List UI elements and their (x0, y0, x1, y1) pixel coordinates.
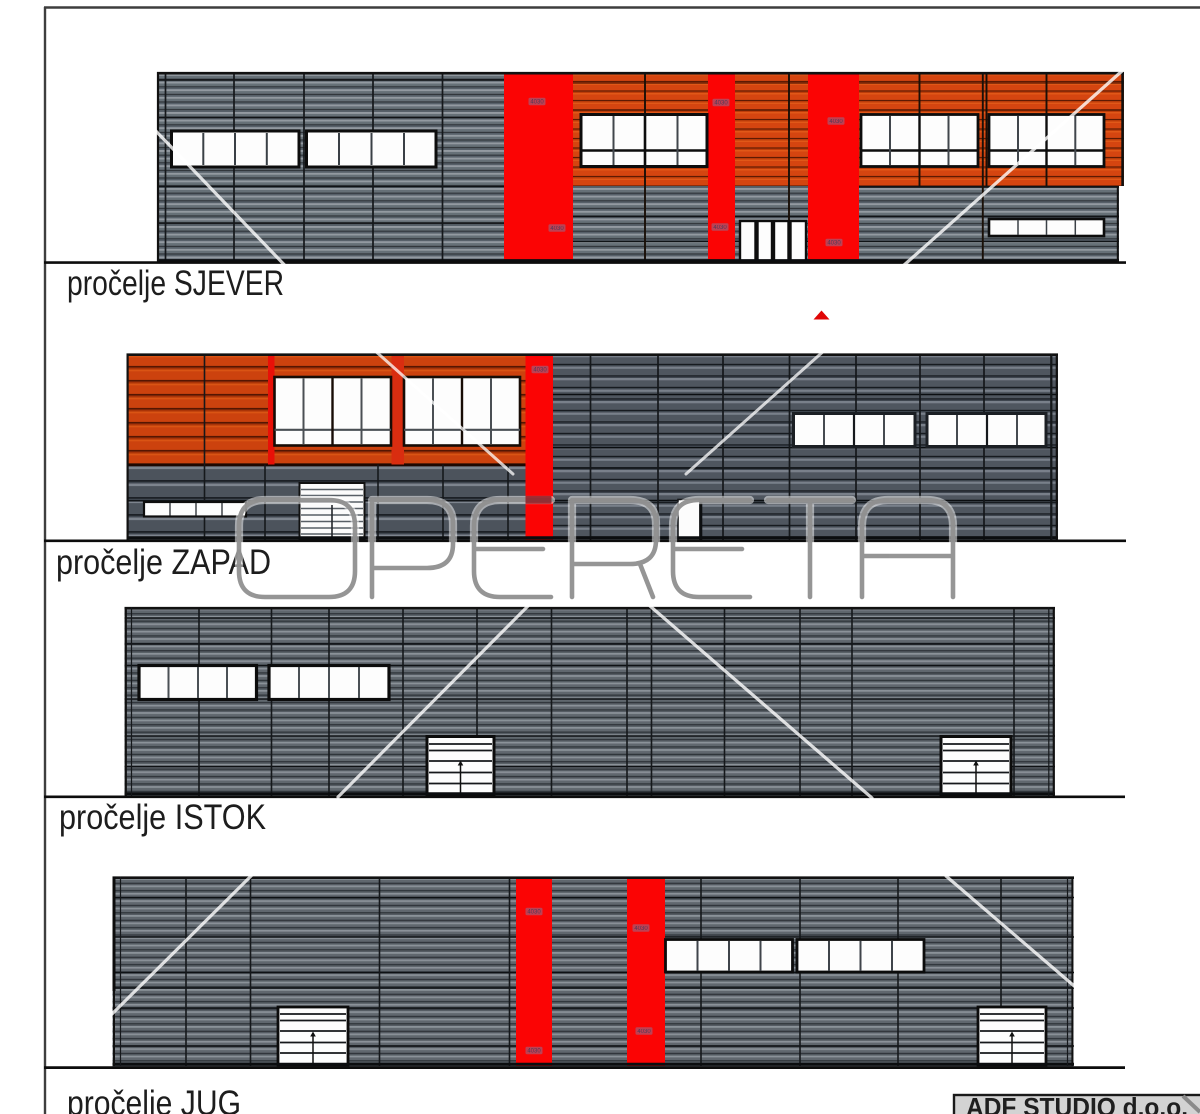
svg-text:4030: 4030 (530, 100, 544, 106)
svg-text:4030: 4030 (527, 910, 541, 916)
svg-text:pročelje JUG: pročelje JUG (67, 1084, 241, 1114)
svg-text:pročelje SJEVER: pročelje SJEVER (67, 264, 284, 303)
svg-text:4030: 4030 (637, 1029, 651, 1035)
svg-text:ADF STUDIO d.o.o.: ADF STUDIO d.o.o. (966, 1092, 1188, 1114)
svg-text:4030: 4030 (634, 926, 648, 932)
svg-text:pročelje ISTOK: pročelje ISTOK (59, 798, 266, 837)
svg-text:4030: 4030 (550, 226, 564, 232)
svg-text:4030: 4030 (713, 225, 727, 231)
svg-text:4030: 4030 (714, 101, 728, 107)
svg-text:4030: 4030 (533, 368, 547, 374)
svg-text:4030: 4030 (527, 1049, 541, 1055)
svg-text:4030: 4030 (827, 241, 841, 247)
svg-text:4030: 4030 (829, 119, 843, 125)
